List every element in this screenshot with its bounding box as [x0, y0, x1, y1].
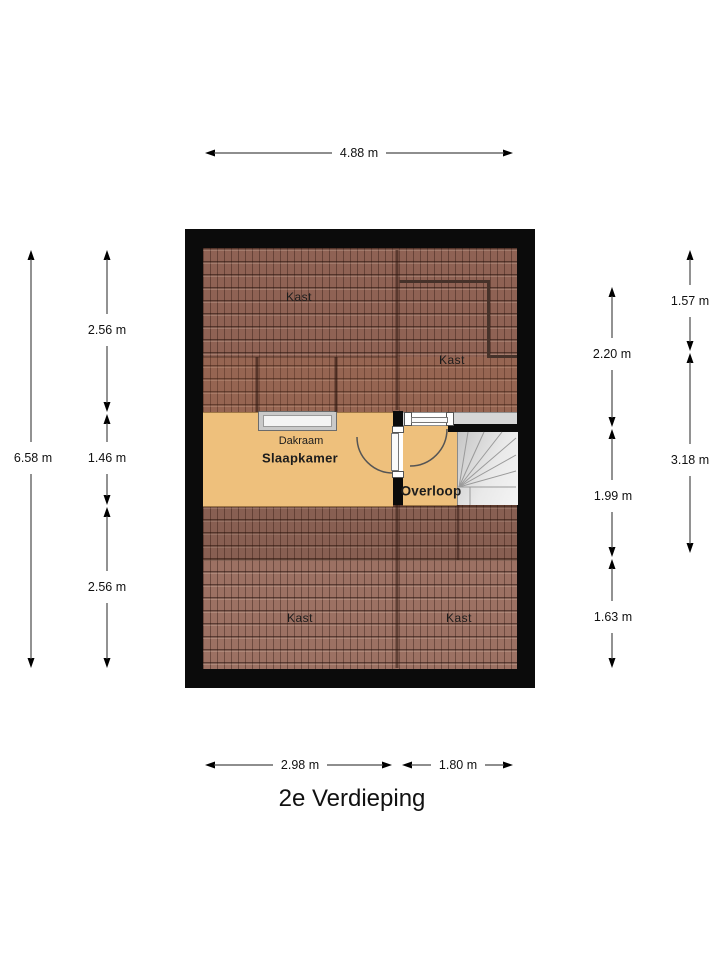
interior-wall-stairs	[448, 424, 517, 432]
door-jamb	[392, 426, 404, 433]
winder-stairs	[457, 432, 518, 505]
page-title: 2e Verdieping	[279, 785, 426, 813]
room-label-dakraam: Dakraam	[279, 435, 324, 447]
dim-right-inner-middle: 1.99 m	[594, 489, 632, 503]
dim-right-inner-top: 2.20 m	[593, 347, 631, 361]
dim-bottom-left: 2.98 m	[281, 758, 319, 772]
dim-right-outer-bottom: 3.18 m	[671, 453, 709, 467]
dim-right-inner-bottom: 1.63 m	[594, 610, 632, 624]
dim-top-width: 4.88 m	[340, 146, 378, 160]
room-label-slaapkamer: Slaapkamer	[262, 451, 338, 466]
room-label-kast-bottom-right: Kast	[446, 611, 472, 625]
room-label-kast-top-right: Kast	[439, 353, 465, 367]
roof-area-top	[203, 248, 517, 412]
dim-left-bottom: 2.56 m	[88, 580, 126, 594]
room-label-kast-top-left: Kast	[286, 290, 312, 304]
dim-left-middle: 1.46 m	[88, 451, 126, 465]
room-label-overloop: Overloop	[401, 484, 462, 499]
door-leaf-overloop	[411, 417, 448, 423]
floorplan-canvas: Kast Kast Dakraam Slaapkamer Overloop Ka…	[0, 0, 720, 960]
dim-left-top: 2.56 m	[88, 323, 126, 337]
door-leaf-slaapkamer	[391, 433, 399, 471]
door-jamb	[392, 471, 404, 478]
dim-left-total: 6.58 m	[14, 451, 52, 465]
dim-bottom-right: 1.80 m	[439, 758, 477, 772]
dim-right-outer-top: 1.57 m	[671, 294, 709, 308]
room-label-kast-bottom-left: Kast	[287, 611, 313, 625]
roof-area-bottom	[203, 505, 517, 669]
dakraam-skylight-glass	[263, 415, 332, 427]
